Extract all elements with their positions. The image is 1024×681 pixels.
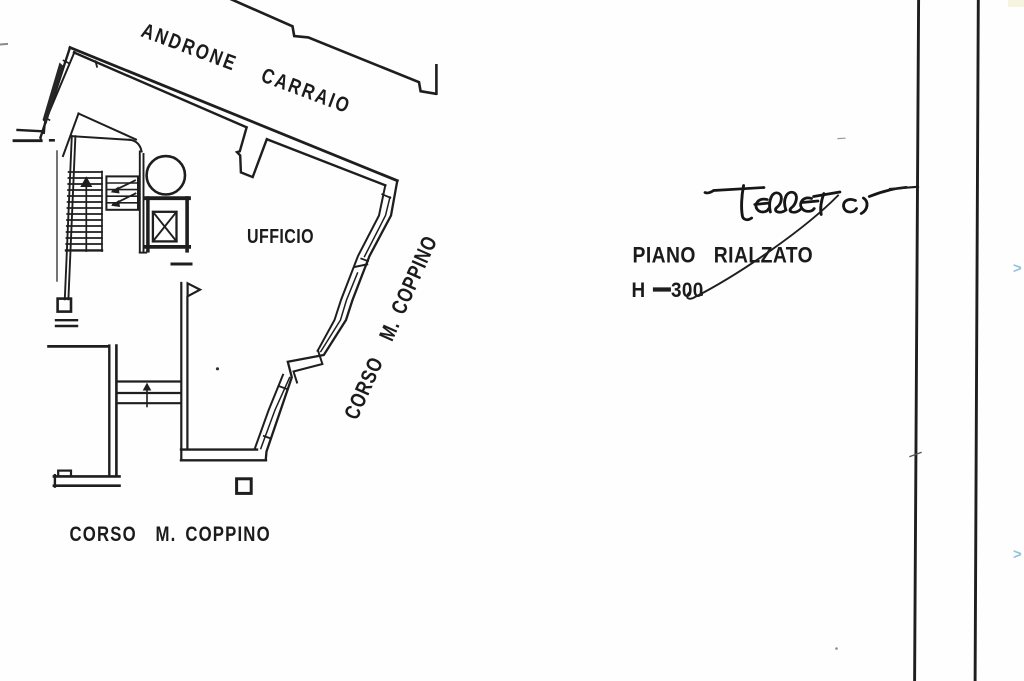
svg-text:PIANORIALZATO: PIANORIALZATO (633, 243, 814, 268)
svg-text:UFFICIO: UFFICIO (247, 225, 314, 247)
svg-text:CORSOM.COPPINO: CORSOM.COPPINO (70, 523, 271, 546)
svg-text:>: > (1013, 546, 1022, 563)
svg-text:ANDRONECARRAIO: ANDRONECARRAIO (138, 19, 354, 118)
svg-text:>: > (1013, 260, 1022, 277)
